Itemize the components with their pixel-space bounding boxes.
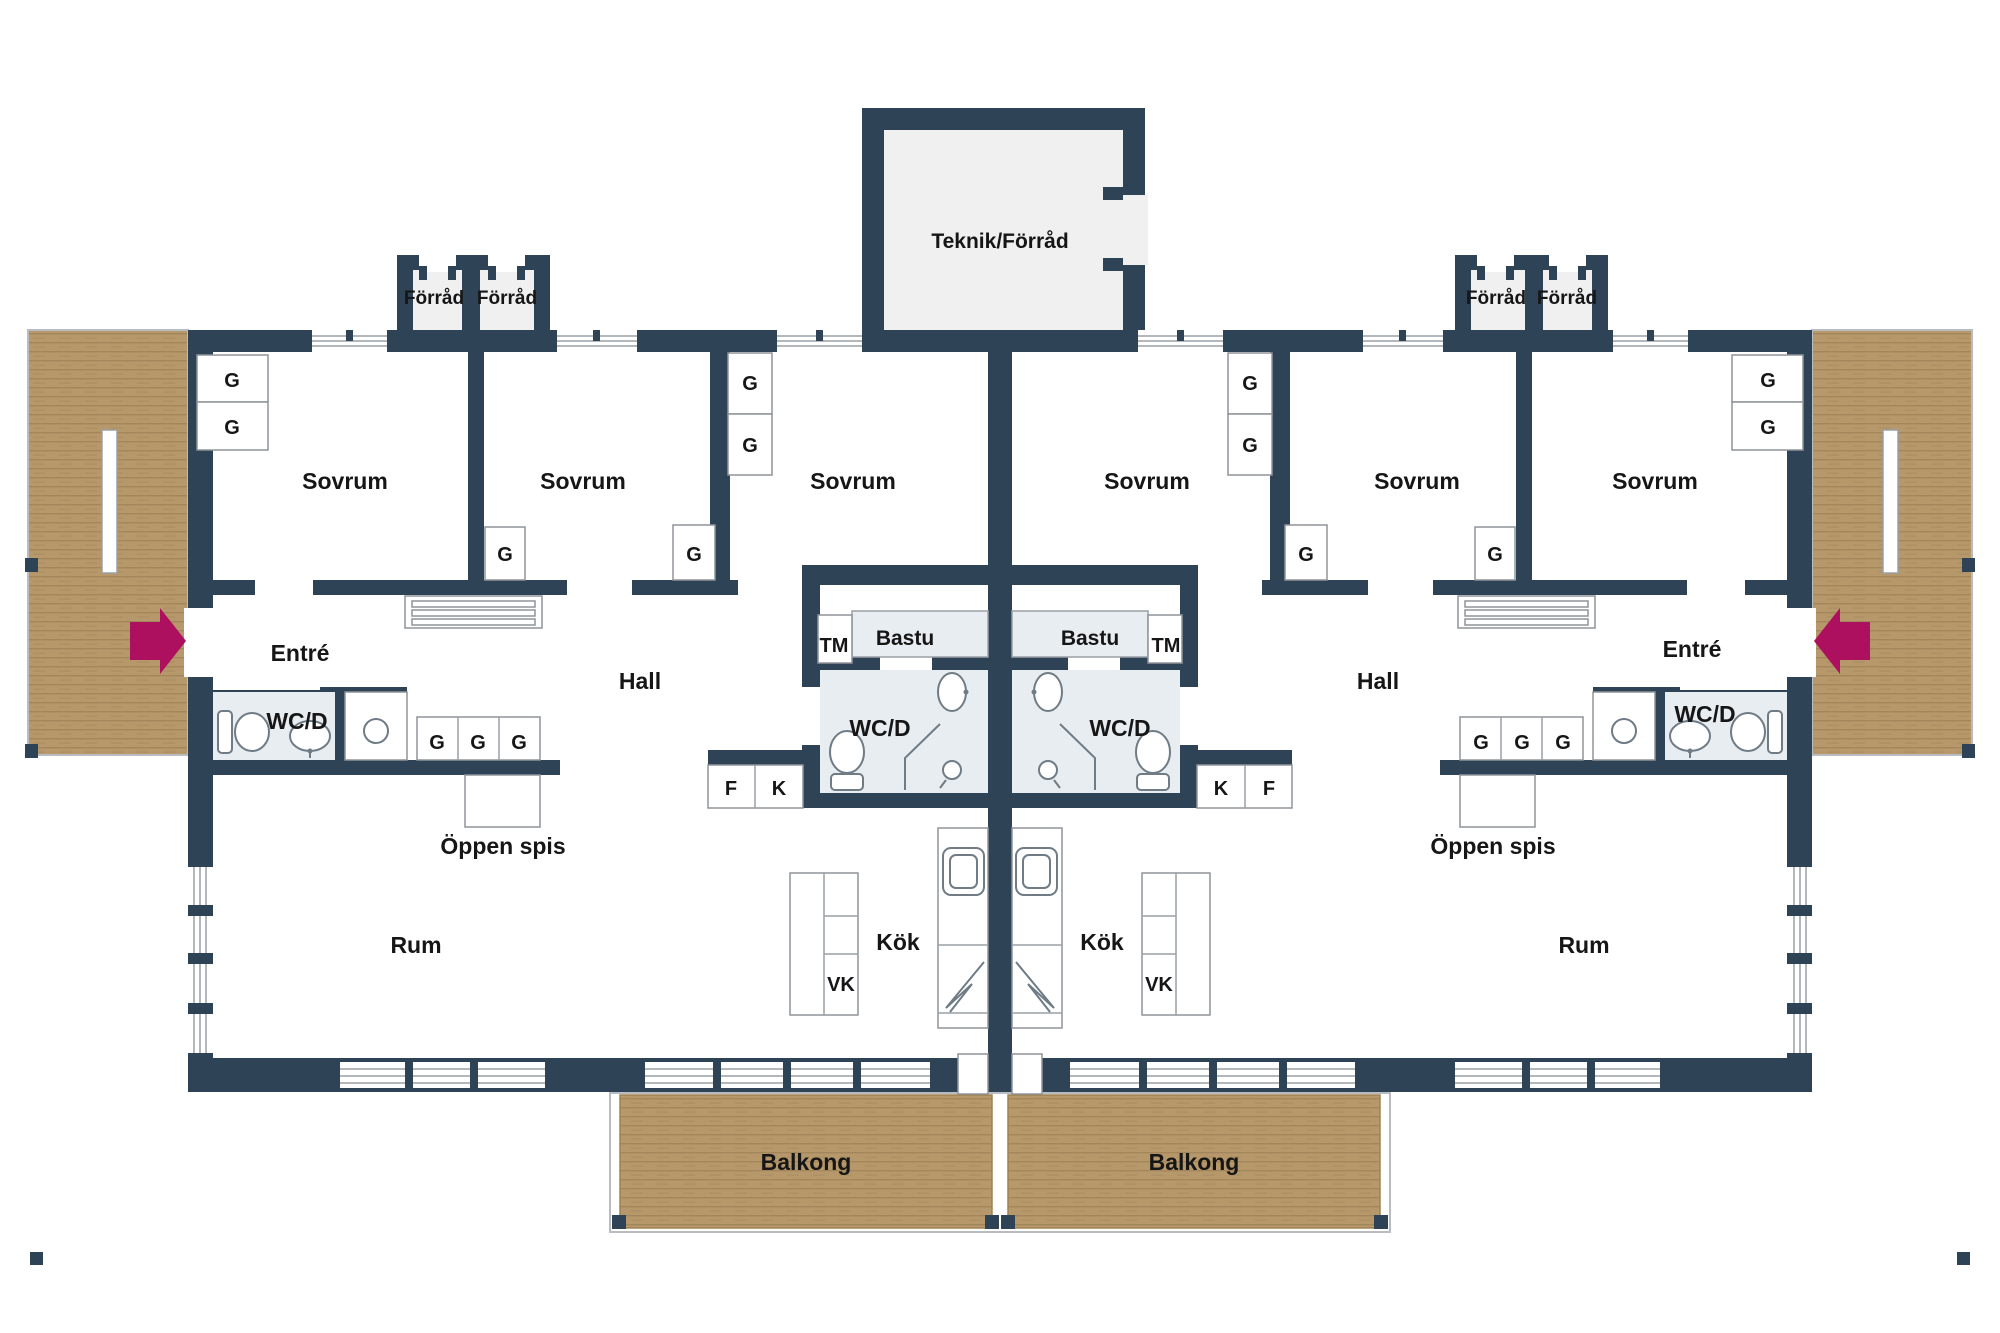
balkong-label: Balkong xyxy=(761,1149,852,1175)
vk-label: VK xyxy=(1145,974,1173,996)
garderob-label: G xyxy=(1242,435,1258,457)
balcony-door xyxy=(958,1054,988,1094)
top-window xyxy=(1613,330,1688,352)
exterior-walls xyxy=(188,330,1812,1092)
door-jamb xyxy=(1578,266,1586,280)
top-window xyxy=(1363,330,1443,352)
right-entry-deck xyxy=(1812,330,1975,758)
rum-label: Rum xyxy=(1558,932,1609,958)
door-jamb xyxy=(419,266,427,280)
balcony-post xyxy=(1001,1215,1015,1229)
deck-post xyxy=(1962,744,1975,758)
toilet-tank xyxy=(831,774,863,790)
hall-label: Hall xyxy=(1357,668,1399,694)
wall xyxy=(862,108,1145,130)
balcony-post xyxy=(985,1215,999,1229)
garderob-label: G xyxy=(1473,732,1489,754)
teknik-forrad-label: Teknik/Förråd xyxy=(931,230,1068,253)
balkong-label: Balkong xyxy=(1149,1149,1240,1175)
forrad-label: Förråd xyxy=(1537,288,1597,309)
door-jamb xyxy=(517,266,525,280)
garderob-label: G xyxy=(1555,732,1571,754)
garderob-label: G xyxy=(470,732,486,754)
top-wall xyxy=(188,330,1812,352)
entre-label: Entré xyxy=(1663,636,1722,662)
entre-label: Entré xyxy=(271,640,330,666)
garderob-label: G xyxy=(1514,732,1530,754)
left-entry-deck xyxy=(25,330,188,758)
left-entry-door-opening xyxy=(184,608,217,677)
forrad-label: Förråd xyxy=(477,288,537,309)
hall-label: Hall xyxy=(619,668,661,694)
door-jamb xyxy=(1549,266,1557,280)
floorplan-page: Balkong Balkong Teknik/Förråd Förråd För… xyxy=(0,0,2000,1333)
garderob-label: G xyxy=(1242,373,1258,395)
shower-icon xyxy=(1039,761,1057,779)
shower-icon xyxy=(1612,719,1636,743)
oppen-spis-label: Öppen spis xyxy=(440,833,565,859)
garderob-label: G xyxy=(224,417,240,439)
sovrum-label: Sovrum xyxy=(810,468,896,494)
tm-label: TM xyxy=(1152,635,1181,657)
wcd-label: WC/D xyxy=(266,708,327,734)
right-entry-door-opening xyxy=(1783,608,1816,677)
site-marker xyxy=(30,1252,43,1265)
left-wall-window-band xyxy=(188,867,213,1053)
garderob-label: G xyxy=(1487,544,1503,566)
toilet-tank xyxy=(1137,774,1169,790)
sovrum-label: Sovrum xyxy=(1612,468,1698,494)
kitchen-right xyxy=(1012,828,1062,1028)
kok-label: Kök xyxy=(1080,929,1124,955)
kyl-label: K xyxy=(1214,778,1229,800)
forrad-label: Förråd xyxy=(1466,288,1526,309)
balcony-post xyxy=(1374,1215,1388,1229)
vk-label: VK xyxy=(827,974,855,996)
top-window xyxy=(557,330,637,352)
balconies: Balkong Balkong xyxy=(610,1093,1390,1232)
wcd-label: WC/D xyxy=(1674,701,1735,727)
wall xyxy=(862,108,884,330)
sovrum-label: Sovrum xyxy=(1104,468,1190,494)
garderob-label: G xyxy=(1760,417,1776,439)
kyl-label: K xyxy=(772,778,787,800)
garderob-label: G xyxy=(1298,544,1314,566)
teknik-forrad-room: Teknik/Förråd xyxy=(862,108,1148,330)
oppen-spis-box-right xyxy=(1460,775,1535,827)
toilet-icon xyxy=(1768,711,1782,753)
sovrum-label: Sovrum xyxy=(540,468,626,494)
bottom-window xyxy=(1070,1062,1355,1088)
kitchen-left xyxy=(938,828,988,1028)
deck-slot xyxy=(102,430,117,573)
sink-icon xyxy=(1034,673,1062,711)
sink-icon xyxy=(938,673,966,711)
wcd-label: WC/D xyxy=(849,715,910,741)
balcony-door xyxy=(1012,1054,1042,1094)
floorplan-svg: Balkong Balkong Teknik/Förråd Förråd För… xyxy=(0,0,2000,1333)
garderob-label: G xyxy=(1760,370,1776,392)
kok-label: Kök xyxy=(876,929,920,955)
bottom-window xyxy=(1455,1062,1660,1088)
deck-post xyxy=(25,558,38,572)
party-wall xyxy=(988,352,1012,1092)
forrad-left-pair: Förråd Förråd xyxy=(397,252,550,330)
door-jamb xyxy=(1103,258,1123,271)
forrad-label: Förråd xyxy=(404,288,464,309)
oppen-spis-label: Öppen spis xyxy=(1430,833,1555,859)
attic-hatch-icon xyxy=(405,596,542,628)
sovrum-label: Sovrum xyxy=(302,468,388,494)
tm-label: TM xyxy=(820,635,849,657)
garderob-label: G xyxy=(742,435,758,457)
deck-post xyxy=(25,744,38,758)
site-marker xyxy=(1957,1252,1970,1265)
door-opening xyxy=(1120,195,1148,265)
shower-icon xyxy=(364,719,388,743)
oppen-spis-box-left xyxy=(465,775,540,827)
sovrum-label: Sovrum xyxy=(1374,468,1460,494)
bottom-window xyxy=(340,1062,545,1088)
balcony-post xyxy=(612,1215,626,1229)
toilet-icon xyxy=(218,711,232,753)
door-jamb xyxy=(1477,266,1485,280)
garderob-label: G xyxy=(429,732,445,754)
bastu-label: Bastu xyxy=(1061,627,1119,650)
attic-hatch-icon xyxy=(1458,596,1595,628)
garderob-label: G xyxy=(224,370,240,392)
toilet-bowl xyxy=(1731,713,1765,751)
deck-post xyxy=(1962,558,1975,572)
rum-label: Rum xyxy=(390,932,441,958)
bastu-label: Bastu xyxy=(876,627,934,650)
wcd-label: WC/D xyxy=(1089,715,1150,741)
garderob-label: G xyxy=(497,544,513,566)
toilet-bowl xyxy=(235,713,269,751)
top-window xyxy=(1138,330,1223,352)
top-window xyxy=(777,330,862,352)
bottom-window xyxy=(645,1062,930,1088)
shower-icon xyxy=(943,761,961,779)
garderob-label: G xyxy=(511,732,527,754)
deck-slot xyxy=(1883,430,1898,573)
door-jamb xyxy=(1103,187,1123,200)
door-jamb xyxy=(1506,266,1514,280)
garderob-label: G xyxy=(742,373,758,395)
frys-label: F xyxy=(1263,778,1275,800)
right-wall-window-band xyxy=(1787,867,1812,1053)
garderob-label: G xyxy=(686,544,702,566)
top-window xyxy=(312,330,387,352)
door-jamb xyxy=(488,266,496,280)
frys-label: F xyxy=(725,778,737,800)
door-jamb xyxy=(448,266,456,280)
forrad-right-pair: Förråd Förråd xyxy=(1455,252,1608,330)
